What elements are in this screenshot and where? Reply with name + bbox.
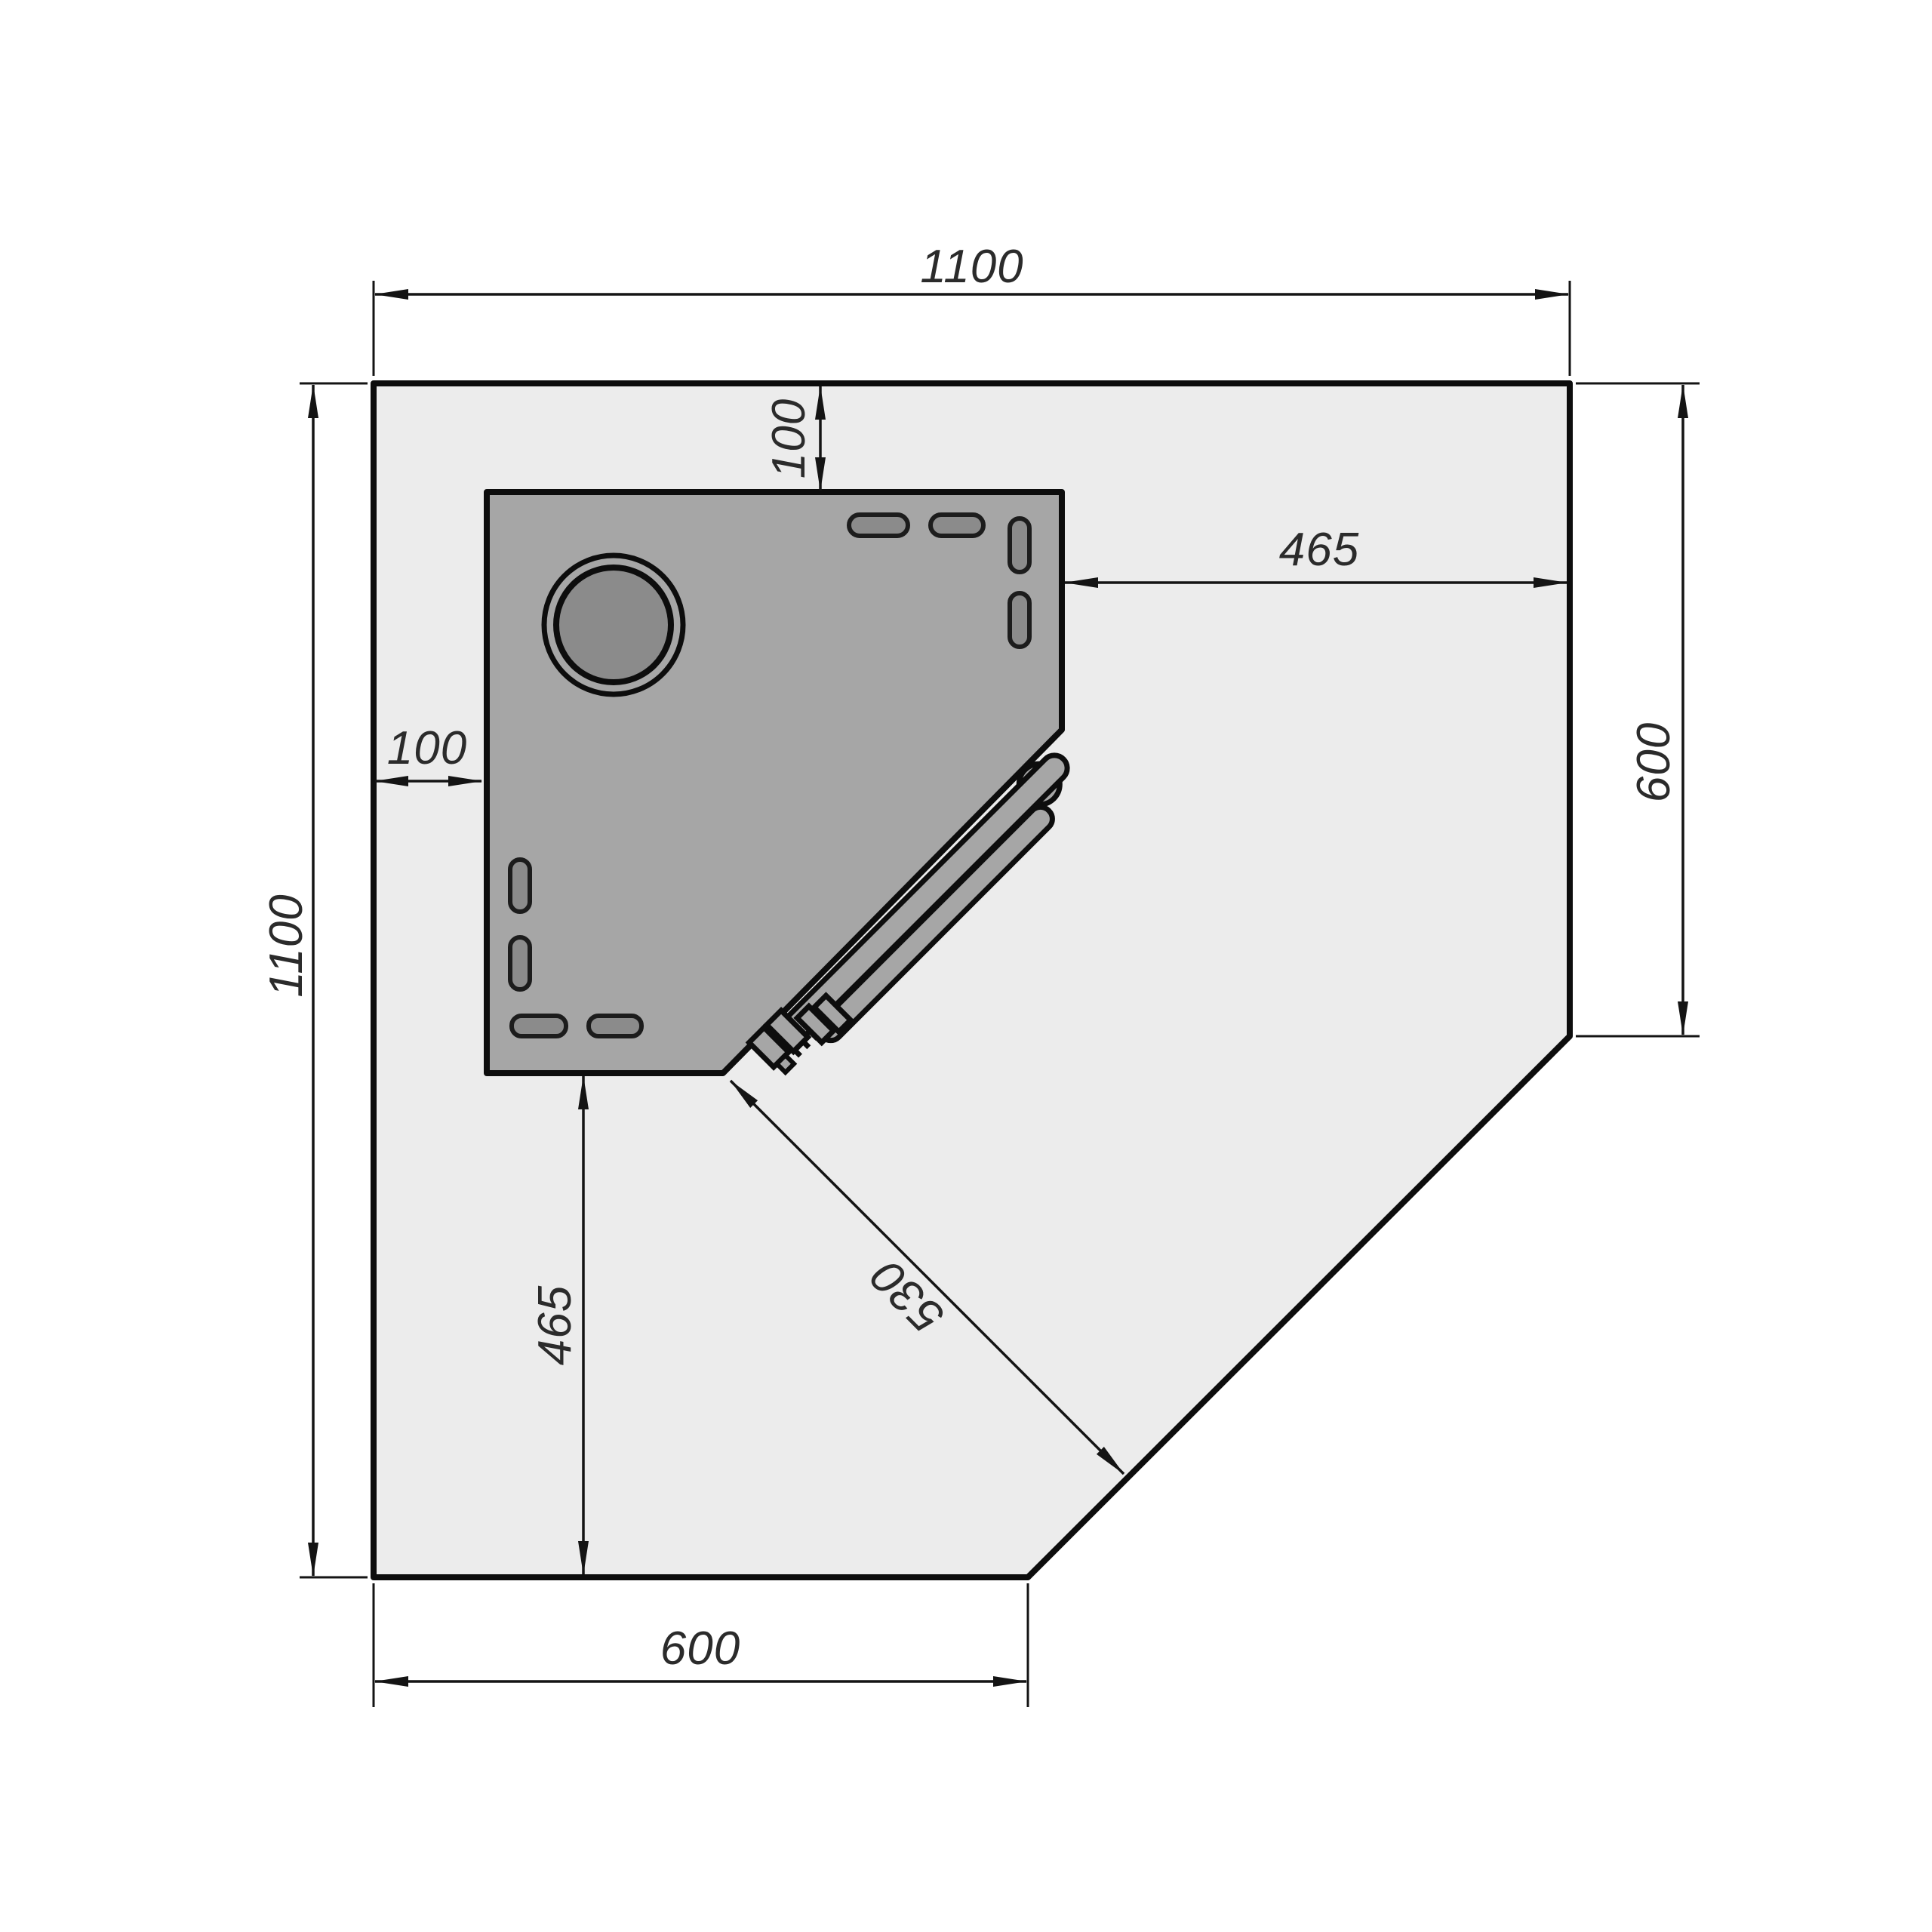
flue-collar-disc xyxy=(556,568,671,682)
dimension-label: 100 xyxy=(387,722,467,774)
dimension-label: 600 xyxy=(1628,722,1680,802)
dim-left-offset: 100 xyxy=(375,722,481,781)
vent-slot xyxy=(1010,518,1029,572)
technical-drawing-canvas: 1100 1100 100 100 465 600 465 530 xyxy=(0,0,1932,1932)
vent-slot xyxy=(931,515,983,536)
dimension-label: 600 xyxy=(660,1623,740,1675)
dimension-label: 465 xyxy=(1279,524,1359,576)
vent-slot xyxy=(510,860,530,912)
vent-slot xyxy=(589,1016,641,1036)
dimension-label: 465 xyxy=(529,1285,581,1365)
vent-slot xyxy=(512,1016,566,1036)
dimension-label: 100 xyxy=(763,398,815,478)
dimension-label: 1100 xyxy=(920,241,1023,293)
dimension-label: 1100 xyxy=(260,894,312,997)
vent-slot xyxy=(849,515,908,536)
vent-slot xyxy=(1010,593,1029,647)
dim-top-offset: 100 xyxy=(763,386,820,491)
vent-slot xyxy=(510,937,530,989)
